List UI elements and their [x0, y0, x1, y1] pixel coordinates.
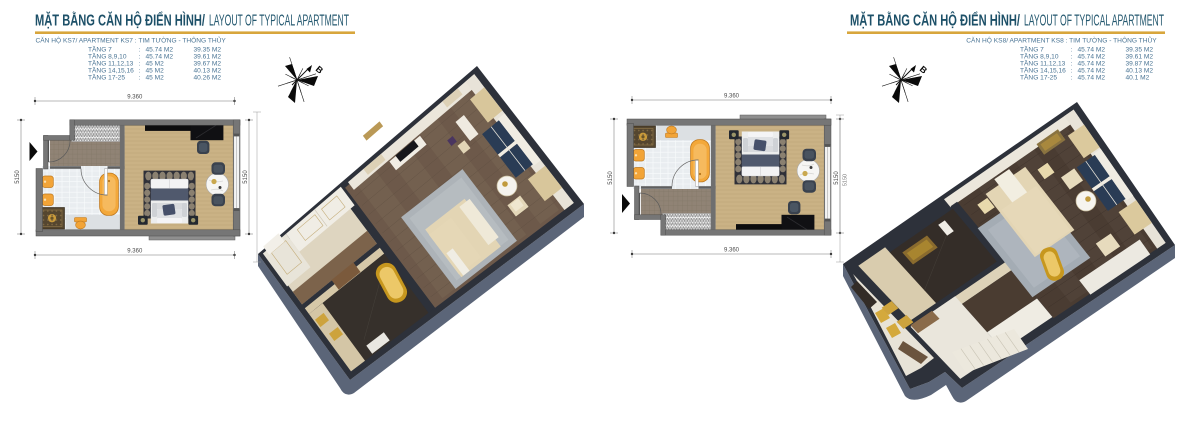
svg-text::: :	[139, 54, 141, 61]
svg-text:9.360: 9.360	[724, 247, 740, 253]
svg-text:5150: 5150	[843, 174, 849, 186]
svg-text:45.74 M2: 45.74 M2	[1078, 47, 1106, 54]
svg-text:45.74 M2: 45.74 M2	[146, 54, 174, 61]
svg-text:5150: 5150	[15, 170, 21, 184]
svg-text::: :	[139, 61, 141, 68]
svg-text:5150: 5150	[243, 170, 249, 184]
svg-text:5150: 5150	[834, 171, 840, 185]
svg-text:5150: 5150	[608, 171, 614, 185]
svg-text::: :	[1071, 47, 1073, 54]
svg-text:45 M2: 45 M2	[146, 68, 165, 75]
svg-text:40.13 M2: 40.13 M2	[194, 68, 222, 75]
svg-text:LAYOUT OF TYPICAL APARTMENT: LAYOUT OF TYPICAL APARTMENT	[209, 13, 349, 30]
svg-text::: :	[1071, 75, 1073, 82]
svg-text:39.61 M2: 39.61 M2	[194, 54, 222, 61]
svg-text:45 M2: 45 M2	[146, 61, 165, 68]
svg-text:LAYOUT OF TYPICAL APARTMENT: LAYOUT OF TYPICAL APARTMENT	[1024, 13, 1164, 30]
svg-text:CĂN HỘ KS7/ APARTMENT KS7 : TI: CĂN HỘ KS7/ APARTMENT KS7 : TIM TƯỜNG - …	[36, 35, 227, 44]
svg-text::: :	[1071, 68, 1073, 75]
svg-text::: :	[139, 68, 141, 75]
svg-text:39.35 M2: 39.35 M2	[1126, 47, 1154, 54]
svg-text:45.74 M2: 45.74 M2	[1078, 68, 1106, 75]
svg-text::: :	[1071, 54, 1073, 61]
svg-text:39.61 M2: 39.61 M2	[1126, 54, 1154, 61]
svg-text:9.360: 9.360	[127, 248, 143, 254]
svg-text:9.360: 9.360	[127, 94, 143, 100]
svg-text:39.35 M2: 39.35 M2	[194, 47, 222, 54]
svg-text:39.67 M2: 39.67 M2	[194, 61, 222, 68]
svg-text:CĂN HỘ KS8/ APARTMENT KS8 : TI: CĂN HỘ KS8/ APARTMENT KS8 : TIM TƯỜNG - …	[966, 35, 1157, 44]
svg-text:45.74 M2: 45.74 M2	[1078, 54, 1106, 61]
svg-text:39.87 M2: 39.87 M2	[1126, 61, 1154, 68]
svg-text::: :	[139, 75, 141, 82]
svg-text::: :	[139, 47, 141, 54]
svg-text:MẶT BẰNG CĂN HỘ ĐIỂN HÌNH/: MẶT BẰNG CĂN HỘ ĐIỂN HÌNH/	[850, 11, 1020, 30]
svg-text:40.26 M2: 40.26 M2	[194, 75, 222, 82]
svg-text:9.360: 9.360	[724, 93, 740, 99]
svg-text::: :	[1071, 61, 1073, 68]
svg-text:45.74 M2: 45.74 M2	[146, 47, 174, 54]
svg-text:45.74 M2: 45.74 M2	[1078, 61, 1106, 68]
svg-text:MẶT BẰNG CĂN HỘ ĐIỂN HÌNH/: MẶT BẰNG CĂN HỘ ĐIỂN HÌNH/	[35, 11, 205, 30]
svg-text:40.13 M2: 40.13 M2	[1126, 68, 1154, 75]
svg-text:45.74 M2: 45.74 M2	[1078, 75, 1106, 82]
svg-text:40.1 M2: 40.1 M2	[1126, 75, 1150, 82]
svg-text:45 M2: 45 M2	[146, 75, 165, 82]
